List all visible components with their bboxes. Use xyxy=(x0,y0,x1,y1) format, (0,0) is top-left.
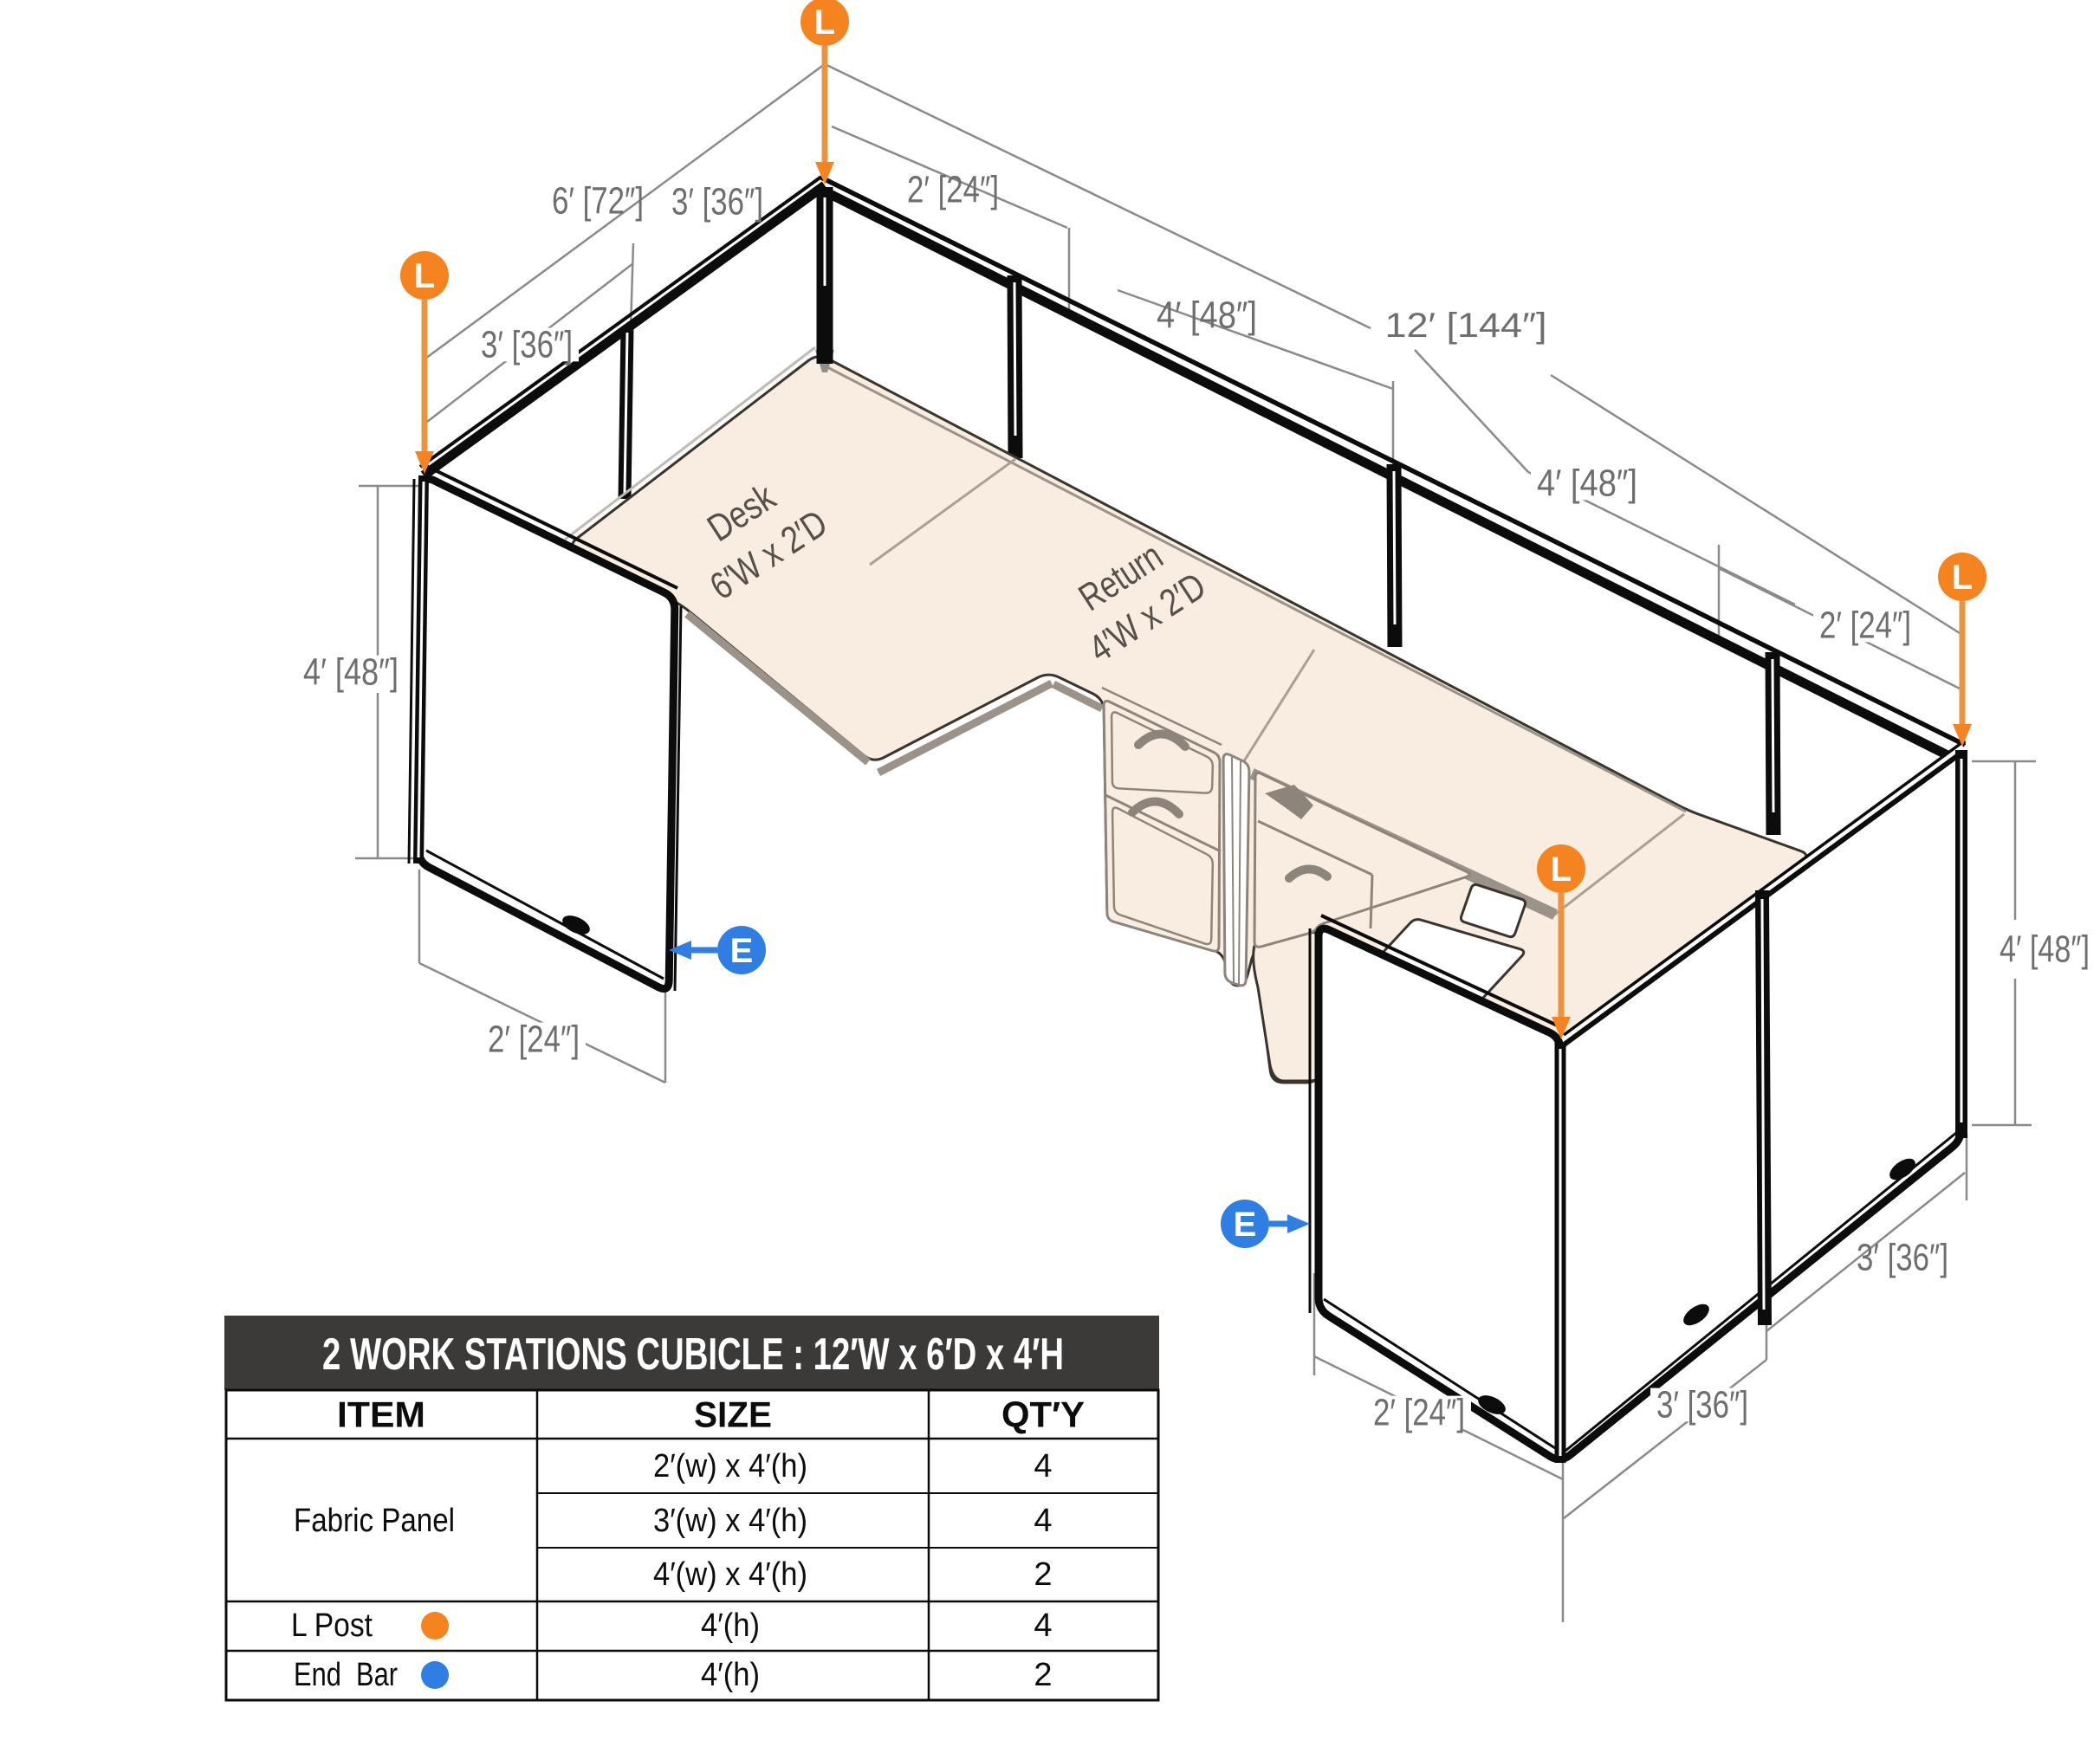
svg-text:E: E xyxy=(1234,1206,1257,1244)
svg-text:2′ [24″]: 2′ [24″] xyxy=(1373,1392,1465,1434)
svg-text:6′ [72″]: 6′ [72″] xyxy=(552,180,644,223)
svg-text:3′ [36″]: 3′ [36″] xyxy=(671,181,763,223)
svg-text:3′(w) x 4′(h): 3′(w) x 4′(h) xyxy=(653,1503,807,1539)
svg-text:2′ [24″]: 2′ [24″] xyxy=(1819,605,1911,647)
svg-text:2′ [24″]: 2′ [24″] xyxy=(488,1019,580,1061)
svg-text:L Post: L Post xyxy=(291,1607,373,1644)
svg-text:3′ [36″]: 3′ [36″] xyxy=(481,324,573,366)
svg-text:4′(h): 4′(h) xyxy=(701,1607,760,1644)
svg-text:QT′Y: QT′Y xyxy=(1001,1394,1085,1435)
svg-text:2: 2 xyxy=(1034,1657,1052,1693)
svg-text:4: 4 xyxy=(1034,1503,1052,1539)
svg-text:2′(w) x 4′(h): 2′(w) x 4′(h) xyxy=(653,1448,807,1484)
svg-text:4: 4 xyxy=(1034,1607,1052,1644)
svg-text:4′ [48″]: 4′ [48″] xyxy=(2000,928,2090,971)
svg-text:SIZE: SIZE xyxy=(694,1394,772,1435)
svg-text:End Bar: End Bar xyxy=(294,1657,398,1693)
svg-text:4′ [48″]: 4′ [48″] xyxy=(1537,462,1637,505)
svg-text:E: E xyxy=(730,932,754,970)
svg-text:4′(h): 4′(h) xyxy=(701,1657,760,1693)
svg-text:L: L xyxy=(1952,559,1973,597)
svg-text:3′ [36″]: 3′ [36″] xyxy=(1857,1237,1948,1279)
svg-text:2′ [24″]: 2′ [24″] xyxy=(907,169,999,211)
svg-text:3′ [36″]: 3′ [36″] xyxy=(1656,1384,1748,1426)
svg-text:12′ [144″]: 12′ [144″] xyxy=(1385,307,1547,345)
svg-text:4′ [48″]: 4′ [48″] xyxy=(1157,294,1257,337)
svg-text:Fabric Panel: Fabric Panel xyxy=(294,1503,455,1539)
svg-text:2 WORK STATIONS CUBICLE : 12: 2 WORK STATIONS CUBICLE : 12′W x 6′D x 4… xyxy=(322,1329,1064,1380)
svg-text:4′(w) x 4′(h): 4′(w) x 4′(h) xyxy=(653,1556,807,1593)
svg-text:L: L xyxy=(414,257,435,295)
svg-text:L: L xyxy=(814,3,835,42)
svg-text:L: L xyxy=(1551,851,1572,889)
svg-text:4: 4 xyxy=(1034,1448,1052,1484)
svg-text:2: 2 xyxy=(1034,1556,1052,1593)
svg-text:4′ [48″]: 4′ [48″] xyxy=(303,651,399,694)
svg-text:ITEM: ITEM xyxy=(337,1394,425,1435)
